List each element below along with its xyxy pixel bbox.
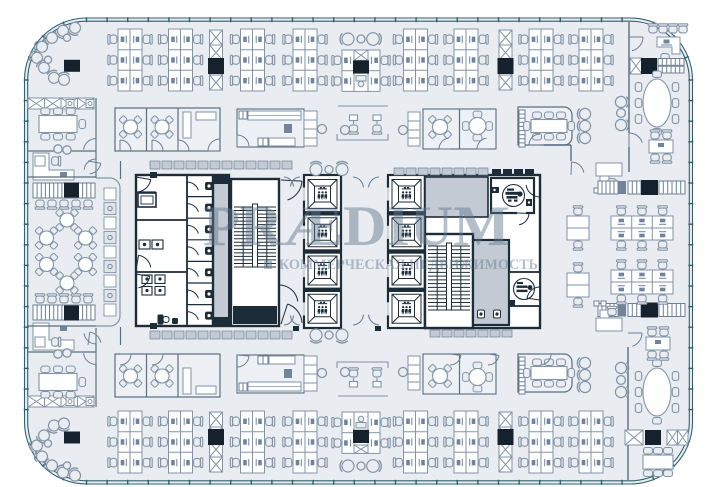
svg-text:КОММЕРЧЕСКАЯ НЕДВИЖИМОСТЬ: КОММЕРЧЕСКАЯ НЕДВИЖИМОСТЬ xyxy=(279,257,538,273)
svg-text:PRÆDIUM: PRÆDIUM xyxy=(203,195,510,258)
